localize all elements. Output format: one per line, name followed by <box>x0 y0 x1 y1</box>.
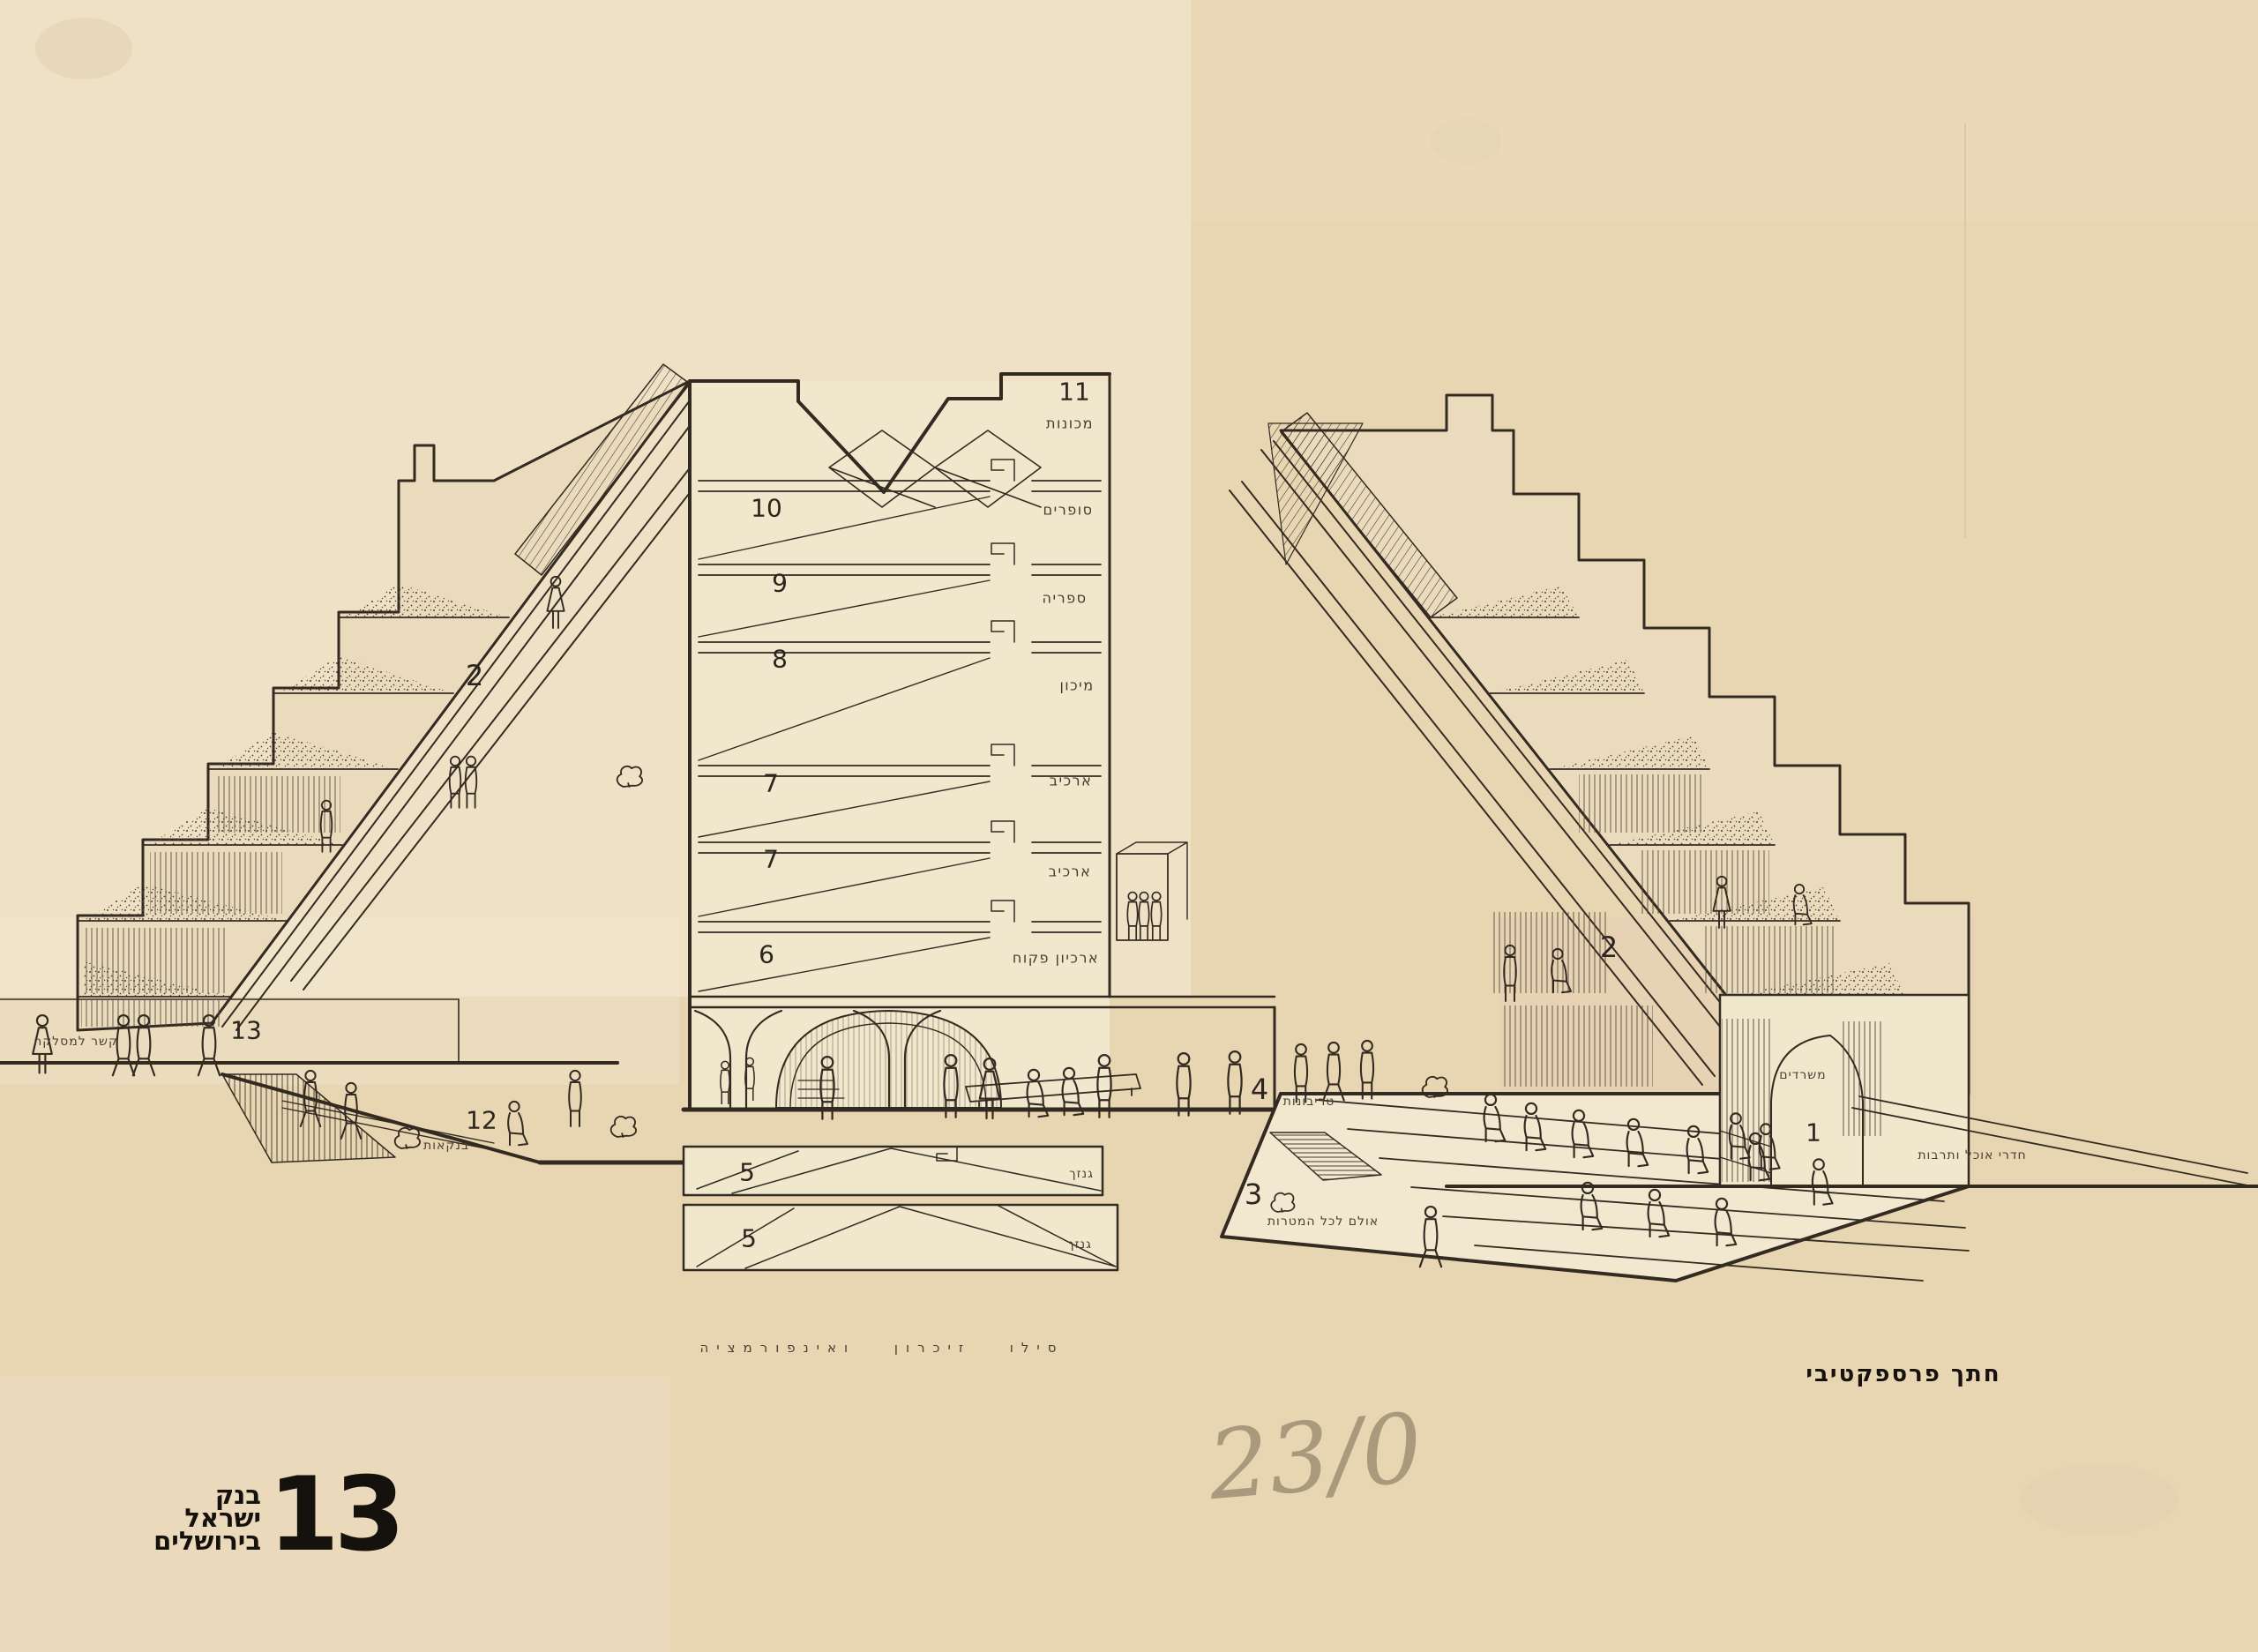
floor-5a-number: 5 <box>739 1158 755 1187</box>
floor-10-label: סופרים <box>1043 502 1094 519</box>
floor-5b-label: גנזך <box>1067 1237 1092 1252</box>
offices-label: משרדים <box>1779 1068 1826 1082</box>
floor-7a-number: 7 <box>763 769 779 798</box>
handwritten-pencil-note: 23/0 <box>1204 1394 1427 1522</box>
floor-7b-number: 7 <box>763 845 779 874</box>
zone-1-number: 1 <box>1806 1118 1821 1147</box>
tribunes-label: טריבונות <box>1283 1095 1335 1109</box>
floor-10-number: 10 <box>751 494 782 523</box>
hall-label: אולם לכל המטרות <box>1267 1215 1379 1229</box>
silo-memory-information-caption: סילו זיכרון ואינפורמציה <box>700 1340 1065 1356</box>
entry-number-13: 13 <box>268 1475 400 1557</box>
dining-culture-label: חדרי אוכל ותרבות <box>1918 1148 2026 1162</box>
floor-5b-number: 5 <box>741 1224 757 1253</box>
clearing-link-label: קשר למסלקה <box>34 1035 118 1049</box>
zone-2-right-number: 2 <box>1600 931 1618 964</box>
bank-israel-jerusalem-text: בנק ישראל בירושלים <box>104 1475 261 1552</box>
floor-9-number: 9 <box>772 569 788 598</box>
floor-9-label: ספריה <box>1043 590 1088 607</box>
zone-2-left-number: 2 <box>466 659 483 692</box>
zone-4-number: 4 <box>1251 1073 1268 1106</box>
floor-8-number: 8 <box>772 645 788 674</box>
floor-6-label: ארכיון פקוח <box>1013 950 1099 967</box>
perspective-section-drawing <box>0 0 2258 1652</box>
zone-3-number: 3 <box>1245 1177 1262 1211</box>
floor-11-number: 11 <box>1058 377 1090 407</box>
perspective-section-caption: חתך פרספקטיבי <box>1806 1361 2000 1387</box>
floor-6-number: 6 <box>759 940 774 969</box>
floor-5a-label: גנזך <box>1069 1167 1094 1181</box>
floor-8-label: מיכון <box>1059 677 1094 694</box>
floor-11-label: מכונות <box>1046 415 1094 432</box>
scanned-section-drawing-sheet: 11 מכונות 10 סופרים 9 ספריה 8 מיכון 7 אר… <box>0 0 2258 1652</box>
zone-13-number: 13 <box>230 1016 262 1045</box>
floor-7a-label: ארכיב <box>1050 773 1093 789</box>
zone-12-number: 12 <box>466 1106 497 1135</box>
banking-label: בנקאות <box>423 1139 469 1153</box>
competition-entry-stamp: בנק ישראל בירושלים 13 <box>104 1475 404 1557</box>
floor-7b-label: ארכיב <box>1049 863 1092 880</box>
